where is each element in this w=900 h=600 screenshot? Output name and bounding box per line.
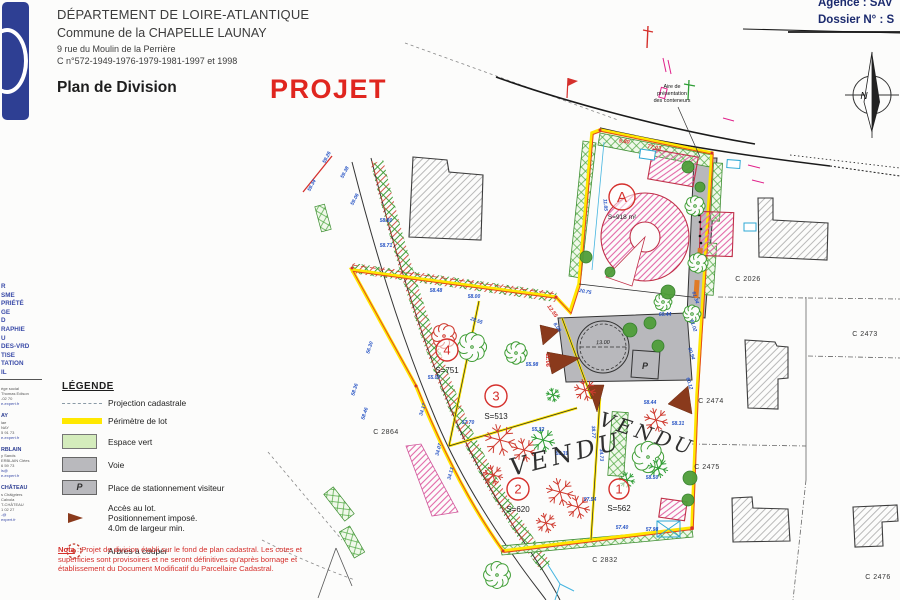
dimension-label: 58.44 [644,400,657,406]
bush-icon [580,251,592,263]
turning-circle-label: 13.00 [596,340,611,347]
scanned-plan-page: { "sidebar": { "logo": {"word_left": "GE… [0,0,900,600]
parcel-label: C 2026 [735,276,761,283]
lot-area-label: S=918 m² [608,214,637,221]
bush-icon [644,317,656,329]
bush-icon [695,182,705,192]
tree-flower-icon [685,196,705,216]
nota-text: Nota : Projet de division établi sur le … [58,545,316,574]
bush-icon [682,494,694,506]
bush-icon [682,161,694,173]
legend-item-label: Espace vert [108,437,152,447]
dimension-label: 57.70 [462,420,475,426]
dimension-label: 12.55 [545,304,558,320]
dimension-label: 58.00 [468,294,481,300]
dimension-label: 58.36 [350,383,360,397]
lot-area-label: S=513 [484,412,508,421]
dimension-label: 11.06 [544,353,550,367]
lot-number: 2 [514,482,521,497]
dimension-label: 59.06 [350,192,361,206]
legend-access-arrow-icon [68,513,83,523]
dimension-label: 11.85 [601,199,608,212]
svg-text:Aire de: Aire de [663,84,680,90]
legend-title: LÉGENDE [62,381,274,392]
lot-number: A [617,189,627,206]
parcel-label: C 2473 [852,331,878,338]
parcel-label: C 2475 [694,464,720,471]
parcel-boundary-lines [692,297,900,600]
parcel-label: C 2832 [592,557,618,564]
dimension-label: 28.55 [468,316,483,326]
dimension-label: 58.46 [360,407,370,421]
dimension-label: 55.32 [532,427,545,433]
legend-item-label: Voie [108,460,124,470]
parcel-label: C 2864 [373,429,399,436]
legend-parking-swatch: P [62,480,97,495]
bush-icon [623,323,637,337]
lot-area-label: S=562 [607,504,631,513]
dimension-label: 20.75 [578,288,593,296]
parcel-label: C 2476 [865,574,891,581]
dimension-label: 60.44 [659,312,672,318]
legend-dashed-line-icon [62,403,102,404]
dimension-label: 58.48 [430,288,443,294]
tree-flower-icon [457,332,486,361]
dimension-label: 58.31 [672,421,685,427]
lot-number: 1 [615,482,622,497]
dimension-label: 57.98 [646,527,659,533]
dimension-label: 57.54 [584,497,597,503]
dimension-label: 56.30 [365,341,375,355]
tree-flower-icon [688,253,708,273]
dimension-label: 58.80 [380,218,393,224]
bush-icon [652,340,664,352]
lot-area-label: S=620 [506,505,530,514]
legend-item-label: Projection cadastrale [108,398,186,408]
legend: LÉGENDE Projection cadastrale Périmètre … [62,381,274,569]
dimension-label: 55.98 [526,362,539,368]
bush-icon [605,267,615,277]
legend-gray-swatch [62,457,97,472]
lot-area-label: S=751 [435,366,459,375]
dimension-label: 58.71 [380,243,393,249]
legend-green-swatch [62,434,97,449]
dimension-label: 55.00 [428,375,441,381]
svg-text:des conteneurs: des conteneurs [654,98,691,104]
legend-yellow-swatch [62,418,102,424]
lot-number: 4 [443,343,450,358]
dimension-label: 57.40 [616,525,629,531]
legend-item-label: Accès au lot. Positionnement imposé. 4.0… [108,503,197,533]
svg-text:présentation: présentation [657,91,687,97]
dimension-label: 59.34 [307,178,318,192]
parcel-label: C 2474 [698,398,724,405]
tree-snowflake-icon [485,425,516,456]
parking-letter: P [642,361,649,371]
dimension-label: 59.38 [340,165,351,179]
bush-icon [683,471,697,485]
containers-annotation: Aire de présentation des conteneurs [654,84,691,104]
tree-snowflake-icon [536,513,555,532]
compass-letter: N [860,91,868,102]
north-compass: N [845,52,899,138]
dimension-label: 58.50 [646,475,659,481]
lot-number: 3 [492,389,499,404]
tree-snowflake-icon [546,388,560,402]
green-verge-patches [315,204,365,558]
bush-icon [661,285,675,299]
tree-flower-icon [484,562,511,589]
tree-flower-icon [505,342,527,364]
legend-item-label: Place de stationnement visiteur [108,483,224,493]
legend-item-label: Périmètre de lot [108,416,167,426]
